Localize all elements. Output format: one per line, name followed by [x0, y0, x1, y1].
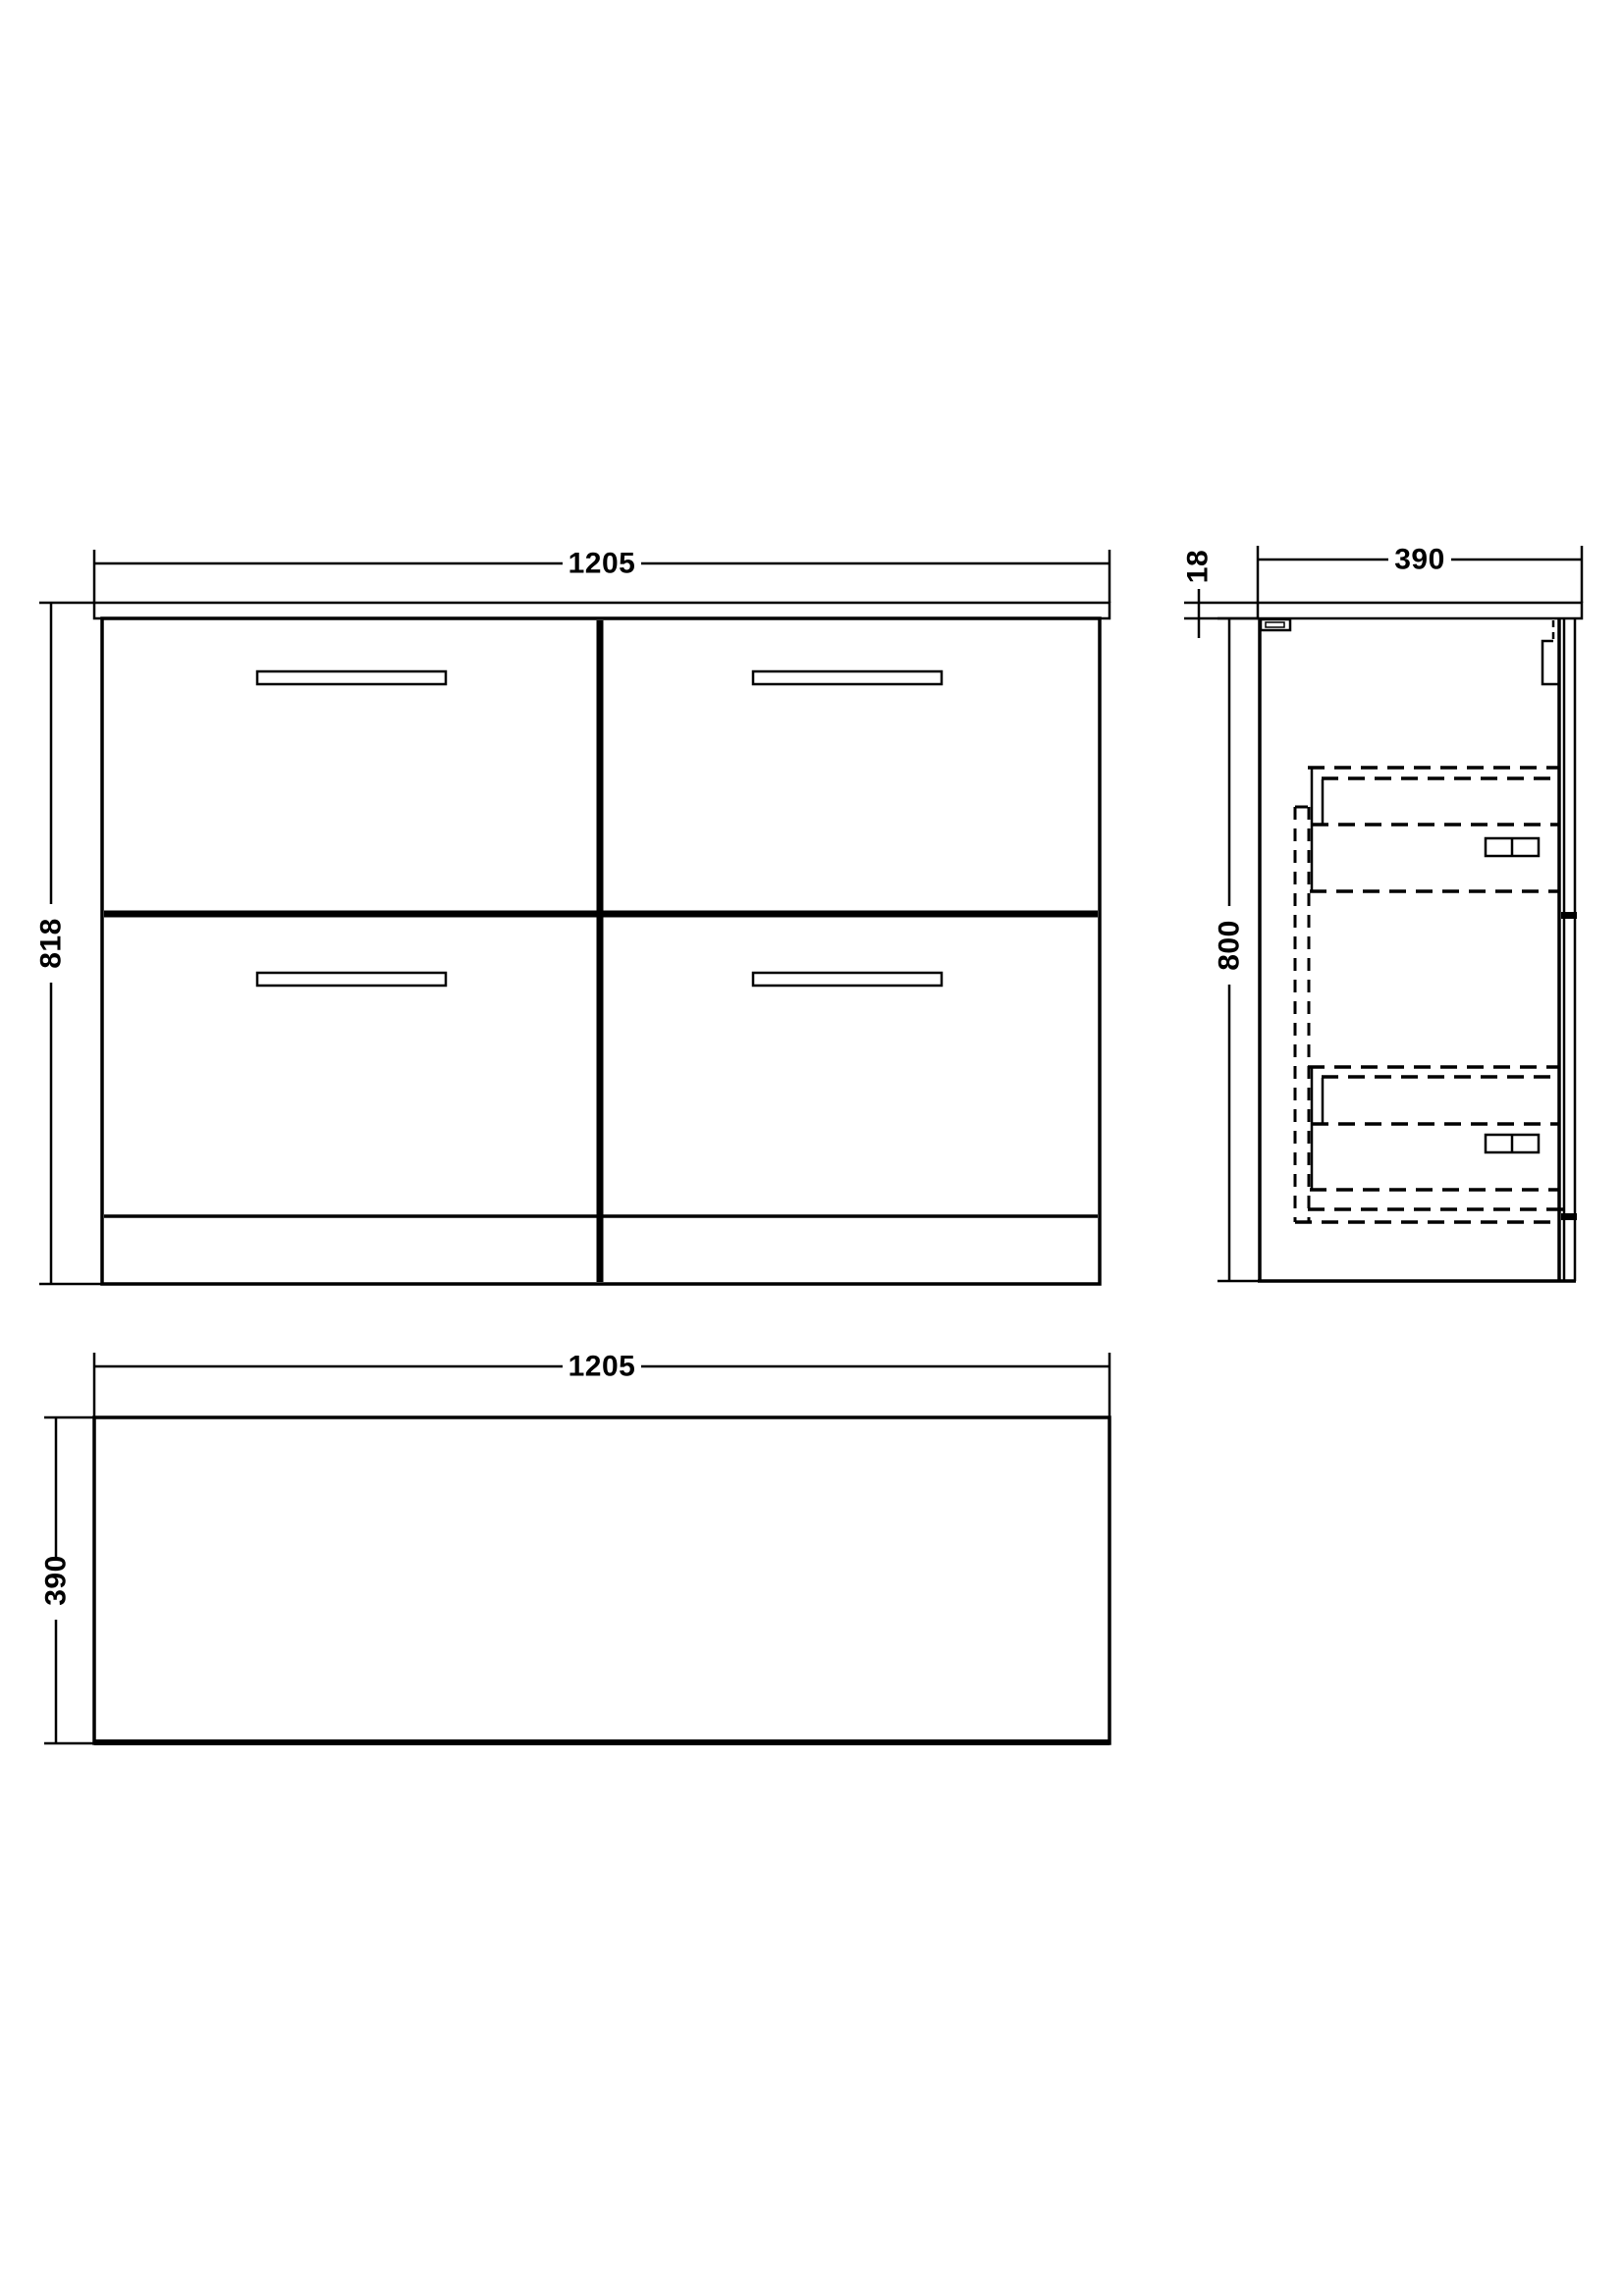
drawer-handle-top-left	[257, 671, 446, 684]
drawer-handle-bottom-left	[257, 973, 446, 986]
vanity-unit-drawing: 1205 818	[0, 0, 1623, 2296]
rotated-label: 800	[1213, 906, 1246, 985]
plan-view: 1205 390	[39, 1350, 1109, 1743]
drawer-handle-top-right	[753, 671, 942, 684]
front-countertop	[94, 603, 1109, 618]
plan-width-value: 1205	[568, 1351, 636, 1383]
drawer-handle-bottom-right	[753, 973, 942, 986]
plan-width-dimension: 1205	[94, 1350, 1109, 1417]
side-view: 390 18 800	[1181, 543, 1582, 1282]
lower-drawer-hidden	[1295, 1067, 1564, 1222]
drawer-runner-rail	[1295, 807, 1309, 1222]
rotated-label: 390	[39, 1555, 73, 1620]
plan-depth-value: 390	[40, 1555, 73, 1606]
front-height-dimension: 818	[34, 603, 102, 1284]
plan-countertop-outline	[94, 1417, 1109, 1743]
rotated-label: 18	[1181, 544, 1215, 589]
drawer-front-gap-lower	[1561, 1213, 1577, 1220]
upper-drawer-hidden	[1308, 768, 1559, 891]
front-view: 1205 818	[34, 547, 1109, 1284]
drawer-front-gap-upper	[1561, 912, 1577, 919]
front-height-value: 818	[35, 918, 68, 969]
rotated-label: 818	[34, 904, 68, 983]
side-height-value: 800	[1214, 920, 1246, 971]
side-depth-value: 390	[1394, 544, 1445, 576]
front-width-value: 1205	[568, 548, 636, 580]
side-height-dimension: 800	[1213, 618, 1258, 1281]
front-width-dimension: 1205	[94, 547, 1109, 603]
side-depth-dimension: 390	[1258, 543, 1582, 603]
fixing-bracket-inner	[1266, 622, 1284, 627]
side-counter-thickness-dimension: 18	[1181, 544, 1258, 638]
side-counter-thickness-value: 18	[1182, 550, 1215, 583]
stepped-clip	[1542, 641, 1559, 684]
side-countertop	[1258, 603, 1582, 618]
plan-depth-dimension: 390	[39, 1417, 94, 1743]
technical-drawing-page: 1205 818	[0, 0, 1623, 2296]
